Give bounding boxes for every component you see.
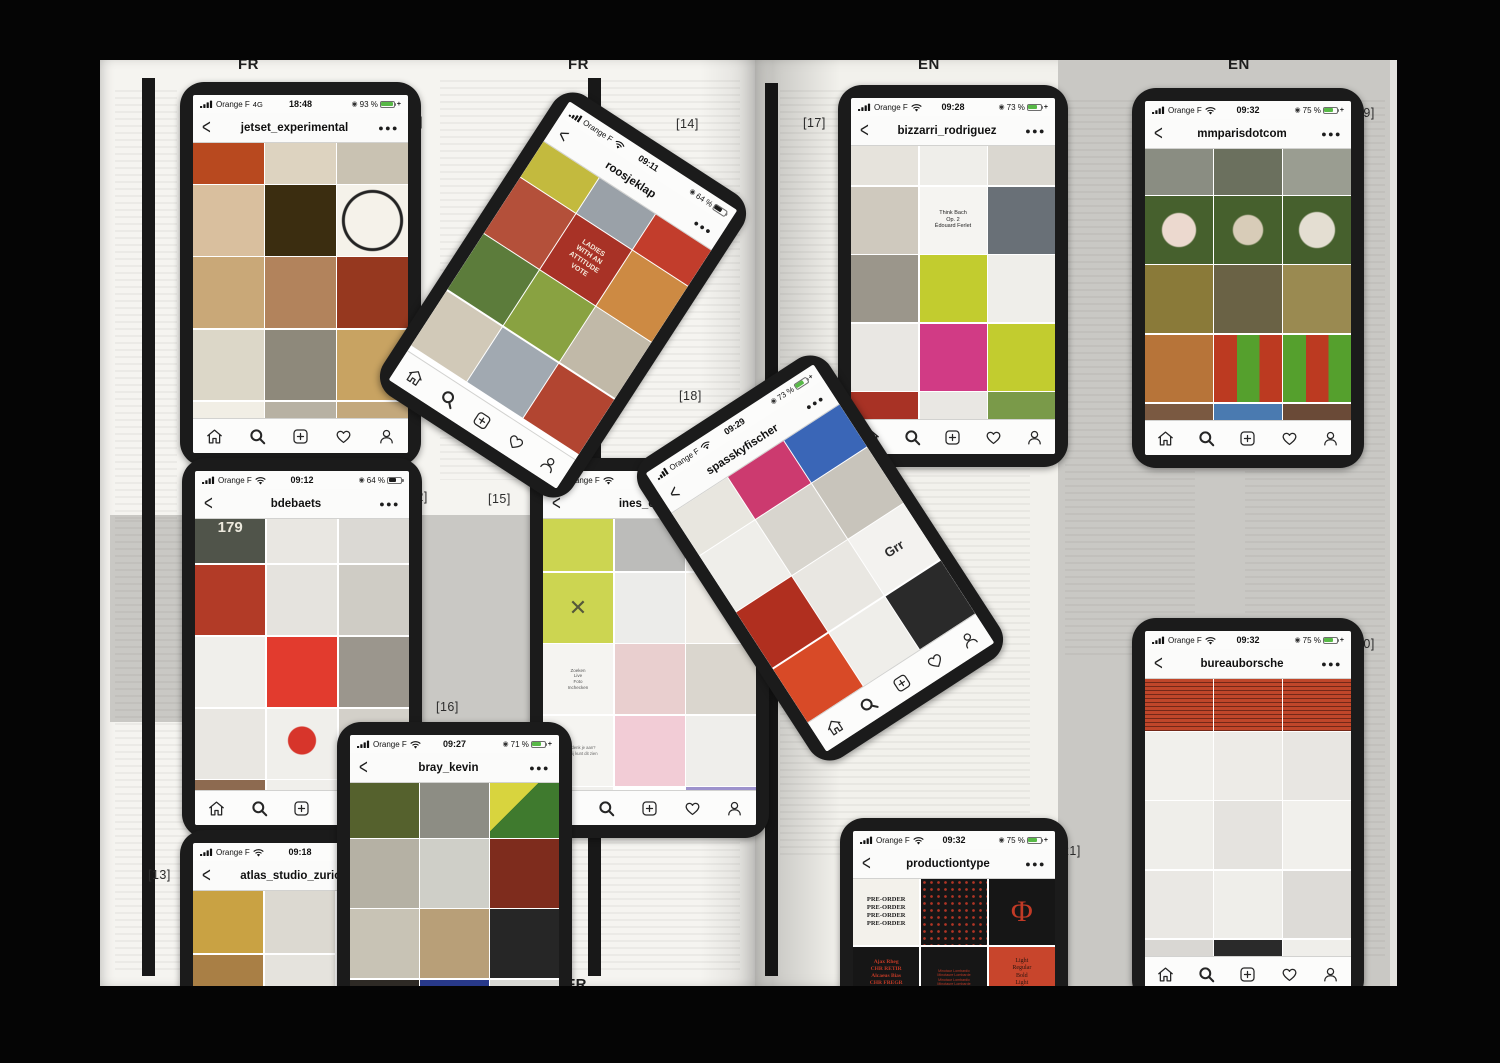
grid-photo[interactable] (337, 143, 408, 184)
grid-photo[interactable] (350, 909, 419, 978)
figure-ref: [17] (803, 116, 826, 130)
profile-header: <bray_kevin●●● (350, 753, 559, 783)
grid-photo[interactable] (337, 257, 408, 328)
tab-new-post-icon[interactable] (640, 799, 659, 818)
tab-search-icon[interactable] (250, 799, 269, 818)
carrier-label: Orange F (876, 836, 910, 845)
phone-jetset-experimental: Orange F4G18:48◉93 %+<jetset_experimenta… (180, 82, 421, 466)
status-bar: Orange F4G18:48◉93 %+ (193, 95, 408, 113)
tab-home-icon[interactable] (821, 713, 847, 739)
tab-new-post-icon[interactable] (292, 799, 311, 818)
more-options-icon[interactable]: ●●● (1025, 859, 1046, 869)
photo-grid: PRE-ORDER PRE-ORDER PRE-ORDER PRE-ORDERΦ… (853, 879, 1055, 986)
tab-new-post-icon[interactable] (888, 670, 914, 696)
grid-photo[interactable] (193, 891, 263, 953)
phone-screen: Orange F09:27◉71 %+<bray_kevin●●● (350, 735, 559, 986)
page-edge-strip (1390, 60, 1397, 986)
more-options-icon[interactable]: ●●● (803, 392, 826, 412)
signal-icon (1152, 636, 1165, 644)
wifi-icon (255, 476, 266, 485)
tab-search-icon[interactable] (248, 427, 267, 446)
carrier-label: Orange F (216, 100, 250, 109)
grid-photo[interactable] (195, 637, 265, 707)
grid-photo[interactable]: ✕ (543, 573, 613, 643)
grid-photo[interactable] (490, 783, 559, 838)
orientation-lock-icon: ◉ (1295, 106, 1301, 114)
grid-photo[interactable] (420, 839, 489, 908)
photo-grid (1145, 149, 1351, 420)
profile-username: mmparisdotcom (1163, 128, 1321, 140)
tab-search-icon[interactable] (1197, 429, 1216, 448)
wifi-icon (913, 836, 924, 845)
tab-bar (543, 790, 756, 825)
signal-icon (568, 109, 583, 123)
profile-header: <bureauborsche●●● (1145, 649, 1351, 679)
grid-photo[interactable]: Think Bach Op. 2 Édouard Ferlet (920, 187, 987, 254)
grid-photo[interactable] (920, 324, 987, 391)
clock: 09:28 (926, 102, 979, 112)
grid-photo[interactable] (921, 879, 987, 945)
battery-percent: 75 % (1303, 106, 1321, 115)
grid-photo[interactable] (851, 255, 918, 322)
grid-photo[interactable] (1214, 404, 1282, 420)
profile-header: <productiontype●●● (853, 849, 1055, 879)
phone-productiontype: Orange F09:32◉75 %+<productiontype●●●PRE… (840, 818, 1068, 986)
wifi-icon (1205, 636, 1216, 645)
grid-photo[interactable] (193, 955, 263, 986)
battery-icon (712, 203, 728, 217)
figure-ref: [13] (148, 868, 171, 882)
signal-icon (200, 848, 213, 856)
phone-mmparisdotcom: Orange F09:32◉75 %+<mmparisdotcom●●● (1132, 88, 1364, 468)
grid-photo[interactable] (1283, 679, 1351, 731)
grid-photo[interactable] (267, 780, 337, 790)
back-chevron-icon[interactable]: < (202, 116, 211, 140)
tab-home-icon[interactable] (205, 427, 224, 446)
wifi-icon (698, 438, 712, 452)
tab-new-post-icon[interactable] (291, 427, 310, 446)
grid-photo[interactable] (265, 257, 336, 328)
grid-photo[interactable] (686, 716, 756, 786)
photo-grid (350, 783, 559, 986)
grid-photo[interactable] (1214, 732, 1282, 800)
tab-activity-heart-icon[interactable] (683, 799, 702, 818)
wifi-icon (603, 476, 614, 485)
tab-search-icon[interactable] (903, 428, 922, 447)
tab-search-icon[interactable] (597, 799, 616, 818)
grid-photo[interactable] (337, 402, 408, 418)
phone-screen: Orange F09:28◉73 %+<bizzarri_rodriguez●●… (851, 98, 1055, 454)
figure-ref: [14] (676, 117, 699, 131)
grid-photo[interactable] (1283, 871, 1351, 939)
battery-icon (1027, 104, 1042, 111)
tab-profile-icon[interactable] (1321, 965, 1340, 984)
back-chevron-icon[interactable]: < (204, 492, 213, 516)
tab-bar (1145, 420, 1351, 455)
grid-photo[interactable] (920, 392, 987, 419)
language-code-en: EN (918, 60, 940, 73)
grid-photo[interactable] (1214, 265, 1282, 333)
grid-photo[interactable] (267, 637, 337, 707)
grid-photo[interactable]: 15 (193, 402, 264, 418)
grid-photo[interactable] (267, 519, 337, 563)
grid-photo[interactable] (265, 185, 336, 256)
charging-icon: + (548, 741, 552, 748)
charging-icon: + (397, 101, 401, 108)
tab-new-post-icon[interactable] (1238, 965, 1257, 984)
tab-bar (193, 418, 408, 453)
clock: 18:48 (272, 99, 328, 109)
back-chevron-icon[interactable]: < (359, 756, 368, 780)
profile-username: bizzarri_rodriguez (869, 125, 1025, 137)
phone-bizzarri-rodriguez: Orange F09:28◉73 %+<bizzarri_rodriguez●●… (838, 85, 1068, 467)
status-bar: Orange F09:32◉75 %+ (853, 831, 1055, 849)
orientation-lock-icon: ◉ (359, 476, 365, 484)
status-bar: Orange F09:28◉73 %+ (851, 98, 1055, 116)
grid-photo[interactable] (1145, 196, 1213, 264)
grid-photo[interactable] (1145, 871, 1213, 939)
battery-percent: 71 % (511, 740, 529, 749)
grid-photo[interactable]: PRE-ORDER PRE-ORDER PRE-ORDER PRE-ORDER (853, 879, 919, 945)
wifi-icon (911, 103, 922, 112)
wifi-icon (253, 848, 264, 857)
signal-icon (1152, 106, 1165, 114)
battery-percent: 73 % (1007, 103, 1025, 112)
signal-icon (860, 836, 873, 844)
orientation-lock-icon: ◉ (503, 740, 509, 748)
battery-percent: 93 % (360, 100, 378, 109)
grid-photo[interactable] (193, 257, 264, 328)
more-options-icon[interactable]: ●●● (379, 499, 400, 509)
back-chevron-icon[interactable]: < (1154, 122, 1163, 146)
more-options-icon[interactable]: ●●● (1321, 129, 1342, 139)
charging-icon: + (1340, 637, 1344, 644)
grid-photo[interactable] (1214, 335, 1282, 403)
grid-photo[interactable] (1214, 196, 1282, 264)
status-bar: Orange F09:12◉64 % (195, 471, 409, 489)
grid-photo[interactable] (490, 839, 559, 908)
profile-header: <jetset_experimental●●● (193, 113, 408, 143)
figure-ref: [15] (488, 492, 511, 506)
wifi-icon (612, 138, 626, 152)
photo-grid: 15 (193, 143, 408, 418)
battery-icon (531, 741, 546, 748)
grid-photo[interactable] (267, 709, 337, 779)
carrier-label: Orange F (373, 740, 407, 749)
grid-photo[interactable] (1283, 732, 1351, 800)
grid-photo[interactable]: Light Regular Bold Light Regular Bold (989, 947, 1055, 986)
phone-screen: Orange F09:32◉75 %+<mmparisdotcom●●● (1145, 101, 1351, 455)
grid-photo[interactable] (195, 780, 265, 790)
battery-icon (793, 376, 809, 390)
orientation-lock-icon: ◉ (999, 836, 1005, 844)
back-chevron-icon[interactable]: < (860, 119, 869, 143)
clock: 09:32 (1221, 635, 1275, 645)
profile-header: <bdebaets●●● (195, 489, 409, 519)
grid-photo[interactable] (195, 709, 265, 779)
figure-ref: [18] (679, 389, 702, 403)
charging-icon: + (1340, 107, 1344, 114)
tab-profile-icon[interactable] (1025, 428, 1044, 447)
network-4g-label: 4G (253, 100, 263, 109)
battery-percent: 75 % (1303, 636, 1321, 645)
tab-home-icon[interactable] (402, 363, 428, 389)
orientation-lock-icon: ◉ (1295, 636, 1301, 644)
grid-photo[interactable] (193, 185, 264, 256)
grid-photo[interactable] (1283, 335, 1351, 403)
carrier-label: Orange F (218, 476, 252, 485)
tab-profile-icon[interactable] (377, 427, 396, 446)
status-bar: Orange F09:27◉71 %+ (350, 735, 559, 753)
grid-photo[interactable] (615, 573, 685, 643)
grid-photo[interactable] (1283, 196, 1351, 264)
grid-photo[interactable] (1283, 404, 1351, 420)
grid-photo[interactable] (988, 146, 1055, 185)
language-code-fr: FR (238, 60, 259, 73)
charging-icon: + (1044, 104, 1048, 111)
grid-photo[interactable] (1145, 679, 1213, 731)
grid-photo[interactable]: Ajax Rheg CHR RETIR Alcaeus Bias CHR FRE… (853, 947, 919, 986)
phone-screen: Orange F09:32◉75 %+<bureauborsche●●● (1145, 631, 1351, 986)
figure-ref: [16] (436, 700, 459, 714)
tab-profile-icon[interactable] (1321, 429, 1340, 448)
tab-profile-icon[interactable] (955, 626, 981, 652)
tab-search-icon[interactable] (435, 385, 461, 411)
grid-photo[interactable] (988, 255, 1055, 322)
battery-icon (1323, 107, 1338, 114)
grid-photo[interactable] (543, 519, 613, 571)
grid-photo[interactable] (1214, 801, 1282, 869)
tab-activity-heart-icon[interactable] (1280, 429, 1299, 448)
battery-percent: 64 % (367, 476, 385, 485)
grid-photo[interactable] (265, 330, 336, 401)
book-spread: FR FR EN EN FR EN [11] [12] [13] [14] [1… (100, 60, 1397, 986)
signal-icon (202, 476, 215, 484)
status-bar: Orange F09:32◉75 %+ (1145, 631, 1351, 649)
grid-photo[interactable]: Zoeken Live Foto Inchecken (543, 644, 613, 714)
tab-bar (1145, 956, 1351, 986)
grid-photo[interactable] (1214, 871, 1282, 939)
carrier-label: Orange F (216, 848, 250, 857)
grid-photo[interactable]: Φ (989, 879, 1055, 945)
grid-photo[interactable] (851, 187, 918, 254)
clock: 09:12 (274, 475, 330, 485)
signal-icon (858, 103, 871, 111)
tab-activity-heart-icon[interactable] (334, 427, 353, 446)
grid-photo[interactable] (337, 185, 408, 256)
carrier-label: Orange F (1168, 106, 1202, 115)
column-rule (142, 78, 155, 976)
battery-icon (1027, 837, 1042, 844)
grid-photo[interactable] (1145, 404, 1213, 420)
status-bar: Orange F09:32◉75 %+ (1145, 101, 1351, 119)
tab-new-post-icon[interactable] (1238, 429, 1257, 448)
grid-photo[interactable] (988, 392, 1055, 419)
grid-photo[interactable] (265, 955, 335, 986)
tab-profile-icon[interactable] (725, 799, 744, 818)
battery-icon (1323, 637, 1338, 644)
battery-percent: 75 % (1007, 836, 1025, 845)
grid-photo[interactable] (1145, 801, 1213, 869)
phone-bray-kevin: Orange F09:27◉71 %+<bray_kevin●●● (337, 722, 572, 986)
grid-photo[interactable] (420, 980, 489, 986)
grid-photo[interactable]: 179 (195, 519, 265, 563)
grid-photo[interactable] (686, 644, 756, 714)
grid-photo[interactable] (339, 565, 409, 635)
more-options-icon[interactable]: ●●● (1025, 126, 1046, 136)
carrier-label: Orange F (1168, 636, 1202, 645)
grid-photo[interactable] (1145, 335, 1213, 403)
grid-photo[interactable] (265, 891, 335, 953)
language-code-fr: FR (568, 60, 589, 73)
profile-username: bdebaets (213, 498, 379, 510)
grid-photo[interactable] (1283, 940, 1351, 956)
tab-search-icon[interactable] (854, 692, 880, 718)
photo-grid (1145, 679, 1351, 956)
clock: 09:32 (928, 835, 981, 845)
grid-photo[interactable] (267, 565, 337, 635)
grid-photo[interactable] (193, 143, 264, 184)
grid-photo[interactable] (1214, 940, 1282, 956)
grid-photo[interactable] (195, 565, 265, 635)
more-options-icon[interactable]: ●●● (529, 763, 550, 773)
clock: 09:32 (1221, 105, 1275, 115)
profile-header: <mmparisdotcom●●● (1145, 119, 1351, 149)
grid-photo[interactable] (1214, 679, 1282, 731)
grid-photo[interactable] (920, 146, 987, 185)
grid-photo[interactable] (615, 716, 685, 786)
tab-home-icon[interactable] (1156, 429, 1175, 448)
tab-new-post-icon[interactable] (469, 407, 495, 433)
grid-photo[interactable] (1145, 265, 1213, 333)
profile-username: jetset_experimental (211, 122, 378, 134)
tab-activity-heart-icon[interactable] (502, 429, 528, 455)
charging-icon: + (1044, 837, 1048, 844)
grid-photo[interactable] (350, 839, 419, 908)
grid-photo[interactable] (350, 783, 419, 838)
photo-grid: Think Bach Op. 2 Édouard Ferlet (851, 146, 1055, 419)
wifi-icon (410, 740, 421, 749)
back-chevron-icon[interactable]: < (202, 864, 211, 888)
grid-photo[interactable] (988, 187, 1055, 254)
signal-icon (200, 100, 213, 108)
more-options-icon[interactable]: ●●● (378, 123, 399, 133)
tab-home-icon[interactable] (207, 799, 226, 818)
orientation-lock-icon: ◉ (352, 100, 358, 108)
wifi-icon (1205, 106, 1216, 115)
profile-username: bray_kevin (368, 762, 529, 774)
signal-icon (654, 467, 669, 481)
profile-header: <bizzarri_rodriguez●●● (851, 116, 1055, 146)
grid-photo[interactable] (193, 330, 264, 401)
more-options-icon[interactable]: ●●● (1321, 659, 1342, 669)
profile-username: bureauborsche (1163, 658, 1321, 670)
battery-icon (380, 101, 395, 108)
grid-photo[interactable] (1145, 149, 1213, 195)
grid-photo[interactable] (420, 909, 489, 978)
tab-new-post-icon[interactable] (943, 428, 962, 447)
grid-photo[interactable] (350, 980, 419, 986)
grid-photo[interactable] (1145, 940, 1213, 956)
grid-photo[interactable] (265, 402, 336, 418)
grid-photo[interactable] (1283, 149, 1351, 195)
tab-activity-heart-icon[interactable] (984, 428, 1003, 447)
grid-photo[interactable] (988, 324, 1055, 391)
tab-profile-icon[interactable] (536, 450, 562, 476)
grid-photo[interactable] (490, 980, 559, 986)
grid-photo[interactable] (920, 255, 987, 322)
clock: 09:18 (272, 847, 328, 857)
clock: 09:27 (427, 739, 482, 749)
grid-photo[interactable] (420, 783, 489, 838)
orientation-lock-icon: ◉ (999, 103, 1005, 111)
battery-icon (387, 477, 402, 484)
profile-username: productiontype (871, 858, 1025, 870)
more-options-icon[interactable]: ●●● (692, 217, 715, 237)
grid-photo[interactable] (615, 644, 685, 714)
grid-photo[interactable] (1214, 149, 1282, 195)
tab-activity-heart-icon[interactable] (922, 648, 948, 674)
back-chevron-icon[interactable]: < (1154, 652, 1163, 676)
grid-photo[interactable] (851, 146, 918, 185)
grid-photo[interactable] (339, 519, 409, 563)
carrier-label: Orange F (874, 103, 908, 112)
tab-search-icon[interactable] (1197, 965, 1216, 984)
language-code-en: EN (1228, 60, 1250, 73)
grid-photo[interactable] (339, 637, 409, 707)
tab-activity-heart-icon[interactable] (1280, 965, 1299, 984)
back-chevron-icon[interactable]: < (862, 852, 871, 876)
grid-photo[interactable] (1145, 732, 1213, 800)
signal-icon (357, 740, 370, 748)
grid-photo[interactable] (1283, 801, 1351, 869)
grid-photo[interactable] (265, 143, 336, 184)
grid-photo[interactable] (490, 909, 559, 978)
grid-photo[interactable] (851, 324, 918, 391)
grid-photo[interactable]: Minotaur Lombardic Minotaure Lombarde Mi… (921, 947, 987, 986)
tab-home-icon[interactable] (1156, 965, 1175, 984)
phone-screen: Orange F4G18:48◉93 %+<jetset_experimenta… (193, 95, 408, 453)
phone-screen: Orange F09:32◉75 %+<productiontype●●●PRE… (853, 831, 1055, 986)
phone-bureauborsche: Orange F09:32◉75 %+<bureauborsche●●● (1132, 618, 1364, 986)
grid-photo[interactable] (1283, 265, 1351, 333)
